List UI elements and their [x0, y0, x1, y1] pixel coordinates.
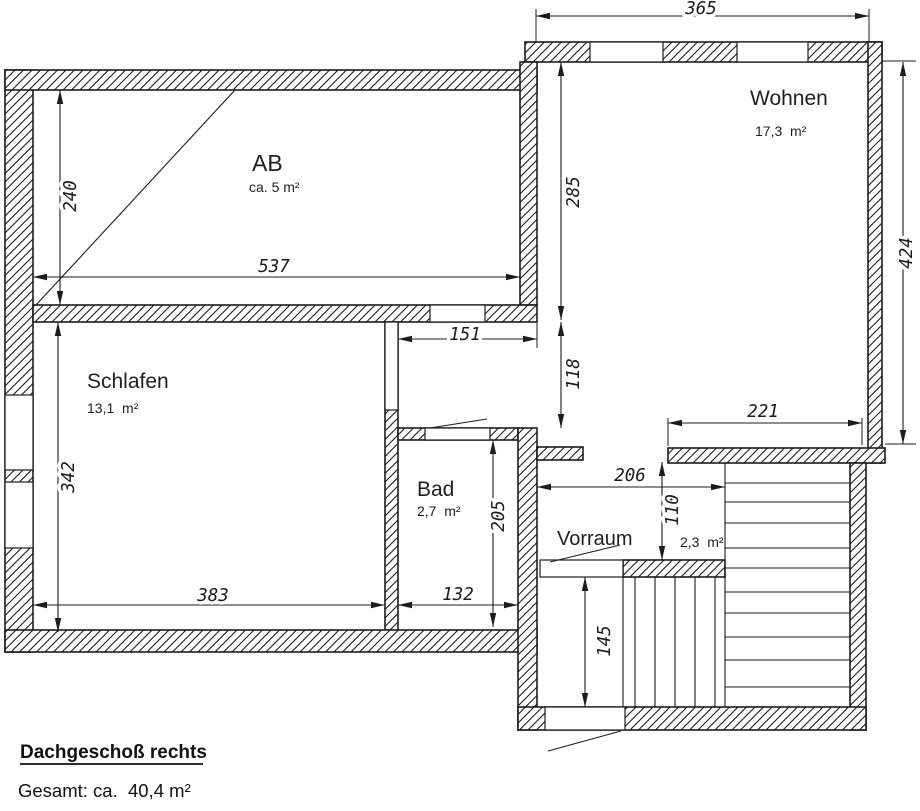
dim-label: 110: [663, 494, 683, 526]
room-label-bad: Bad: [417, 478, 454, 501]
dim-label: 118: [564, 358, 584, 390]
dim-label: 383: [196, 586, 229, 606]
windows: [5, 42, 808, 548]
plan-total-area: Gesamt: ca. 40,4 m²: [18, 780, 191, 801]
plan-title: Dachgeschoß rechts: [20, 742, 207, 763]
window-wohnen-2: [737, 42, 808, 62]
wall-ab-top: [5, 70, 537, 90]
door-vorraum: [540, 560, 623, 577]
room-label-vorraum: Vorraum: [557, 528, 633, 550]
dim-ab-width: 537: [33, 257, 520, 277]
window-wohnen-1: [590, 42, 663, 62]
room-area-bad: 2,7 m²: [417, 503, 461, 519]
floorplan-drawing: 365 240 537 285 118 151: [0, 0, 920, 811]
dim-label: 285: [564, 176, 584, 208]
room-area-wohnen: 17,3 m²: [755, 123, 807, 139]
wall-main-bottom: [5, 630, 537, 652]
dim-label: 206: [614, 466, 646, 486]
door-swing-bad: [430, 419, 487, 428]
dim-corridor-height: 118: [561, 322, 584, 428]
dim-stair-landing: 145: [585, 577, 615, 707]
dim-schlafen-width: 383: [33, 586, 385, 606]
floorplan-page: 365 240 537 285 118 151: [0, 0, 920, 811]
room-area-ab: ca. 5 m²: [249, 179, 300, 195]
wall-stairwell-left: [518, 428, 537, 730]
dim-label: 132: [442, 585, 474, 605]
dim-total-width: 365: [536, 0, 869, 42]
dim-label: 365: [684, 0, 717, 19]
window-schlafen-1: [5, 395, 33, 470]
dim-label: 537: [258, 257, 290, 277]
window-schlafen-2: [5, 482, 33, 548]
wall-wohnen-right: [868, 42, 882, 463]
door-ab: [430, 305, 485, 322]
room-area-schlafen: 13,1 m²: [87, 400, 139, 416]
room-label-schlafen: Schlafen: [87, 370, 169, 393]
wall-wohnen-top: [525, 42, 882, 62]
dim-bad-width: 132: [398, 585, 518, 605]
dim-schlafen-height: 342: [58, 322, 79, 632]
dim-bad-height: 205: [489, 440, 509, 627]
dim-label: 424: [897, 237, 917, 269]
dim-label: 151: [449, 325, 481, 345]
door-entry: [545, 707, 625, 730]
door-swing-entry: [548, 731, 621, 751]
room-area-vorraum: 2,3 m²: [680, 534, 724, 550]
dim-label: 205: [489, 500, 509, 532]
wall-wohnen-bottom: [668, 448, 885, 463]
dim-ab-height: 240: [60, 90, 81, 305]
dim-label: 221: [747, 402, 779, 422]
door-bad: [425, 428, 490, 440]
dim-wohnen-height-inner: 285: [561, 62, 584, 320]
dim-corridor-width: 151: [398, 323, 537, 348]
wall-outer-left: [5, 70, 33, 652]
footer: Dachgeschoß rechts Gesamt: ca. 40,4 m²: [18, 742, 207, 801]
wall-vorraum-bottom: [623, 560, 725, 577]
wall-ab-wohnen-divider: [520, 62, 537, 305]
room-label-wohnen: Wohnen: [750, 87, 828, 110]
dim-wohnen-height: 424: [882, 61, 917, 444]
dim-vorraum-width: 206: [537, 466, 725, 487]
stairs: [623, 463, 850, 707]
wall-stub: [537, 447, 583, 460]
wall-stairwell-right: [850, 463, 866, 730]
dim-label: 240: [61, 180, 81, 212]
door-schlafen: [385, 322, 398, 410]
dim-wohnen-bottom: 221: [668, 402, 862, 446]
dim-label: 145: [595, 625, 615, 657]
room-label-ab: AB: [252, 150, 283, 176]
dim-label: 342: [59, 461, 79, 494]
